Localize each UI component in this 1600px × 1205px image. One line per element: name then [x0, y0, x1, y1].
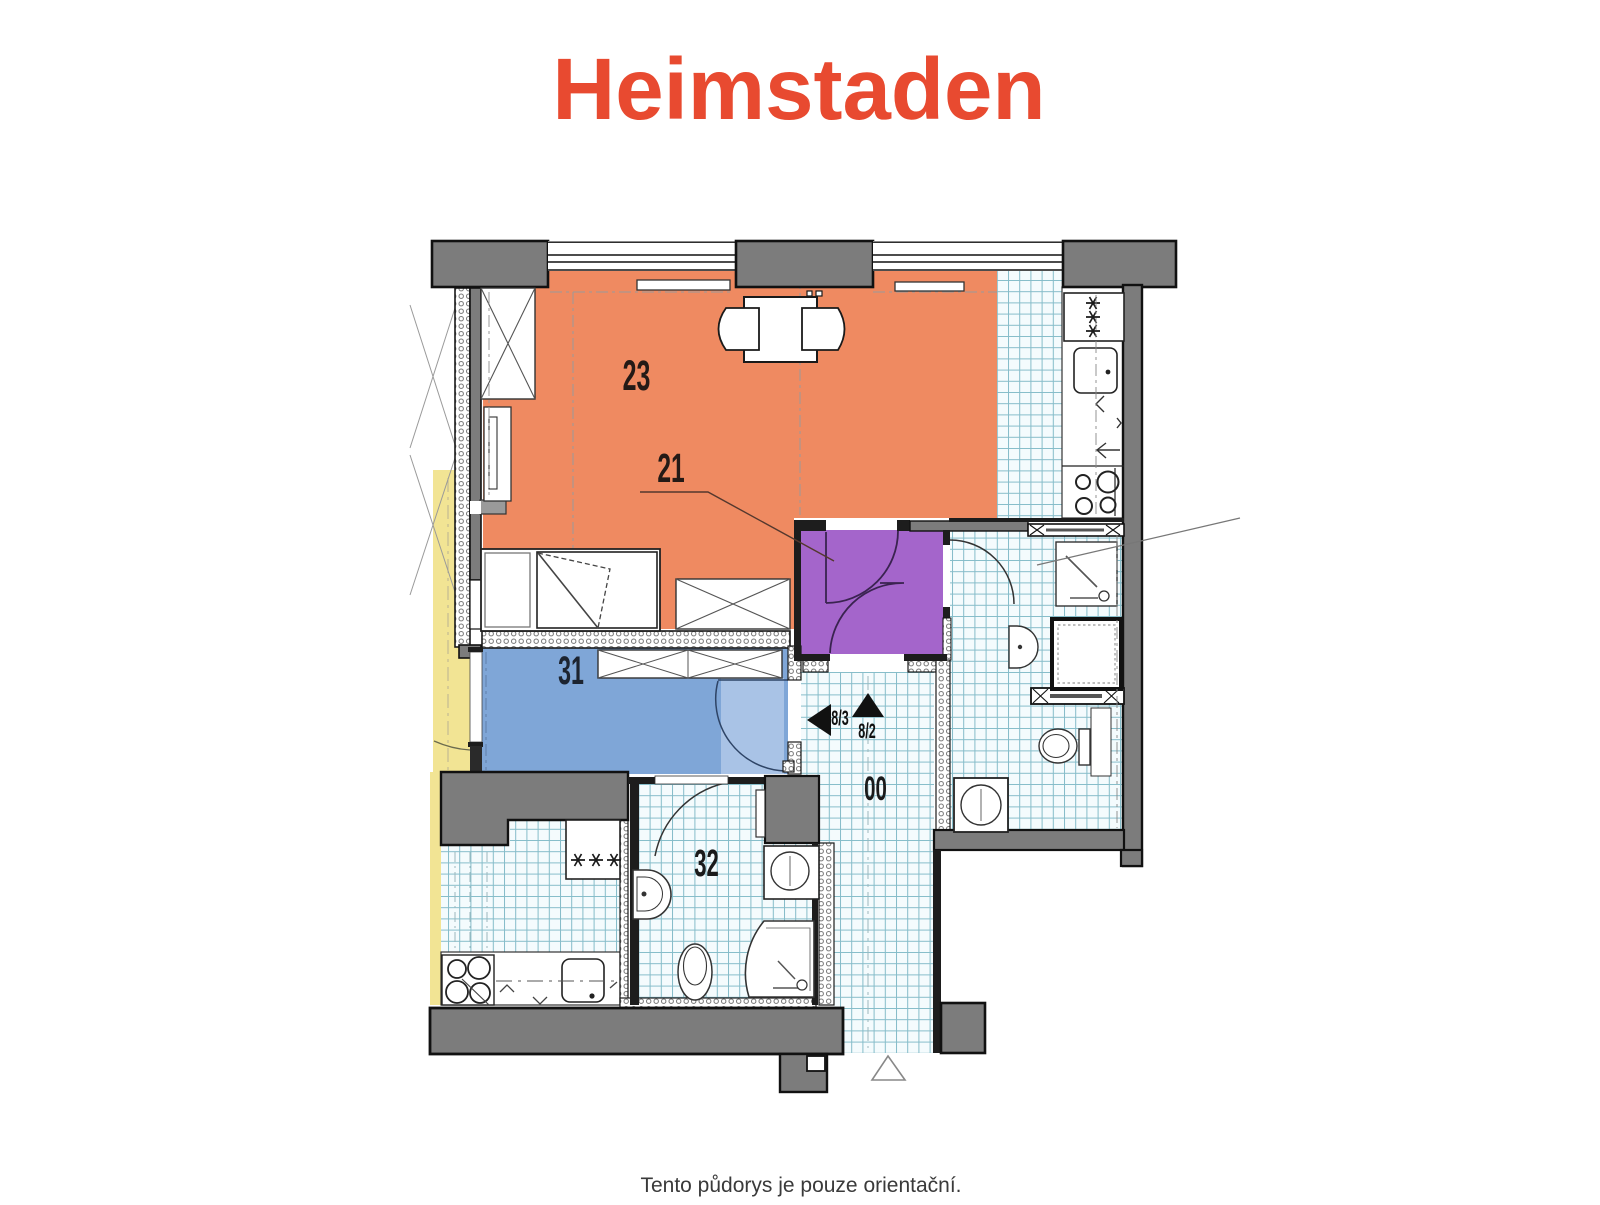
svg-text:Heimstaden: Heimstaden: [552, 41, 1045, 138]
svg-text:8/2: 8/2: [858, 719, 875, 743]
svg-text:23: 23: [623, 352, 651, 400]
svg-text:31: 31: [558, 647, 584, 692]
svg-text:00: 00: [864, 770, 887, 808]
svg-text:Tento půdorys je pouze orienta: Tento půdorys je pouze orientační.: [640, 1174, 961, 1197]
svg-text:32: 32: [694, 842, 719, 885]
svg-text:8/3: 8/3: [831, 706, 848, 730]
svg-text:21: 21: [657, 446, 684, 492]
